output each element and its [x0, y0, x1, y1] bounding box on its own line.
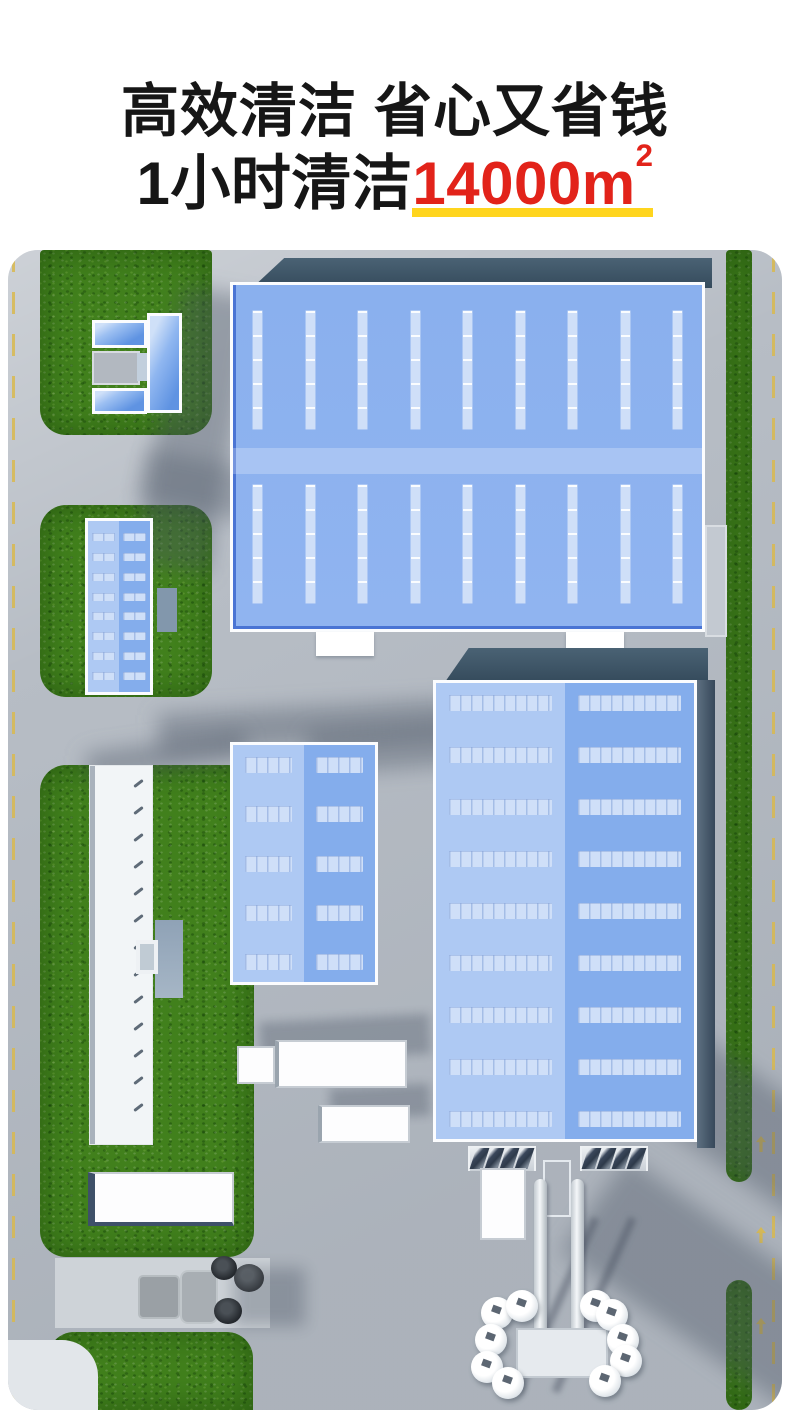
headline-superscript: 2	[636, 138, 654, 173]
header: 高效清洁 省心又省钱 1小时清洁14000m2	[0, 0, 790, 250]
brush-icon	[492, 1367, 524, 1399]
headline-line2: 1小时清洁14000m2	[0, 151, 790, 217]
machine-frame	[543, 1160, 571, 1217]
brush-icon	[506, 1290, 538, 1322]
aerial-industrial-park-illustration	[8, 250, 782, 1410]
brush-icon	[589, 1365, 621, 1397]
headline-line1: 高效清洁 省心又省钱	[0, 0, 790, 143]
gantry-cleaning-machine	[8, 250, 782, 1410]
headline-area-value: 14000m2	[412, 151, 653, 217]
headline-line2-prefix: 1小时清洁	[137, 150, 413, 217]
promo-page: 高效清洁 省心又省钱 1小时清洁14000m2	[0, 0, 790, 1410]
headline-area-number: 14000m	[412, 150, 635, 217]
machine-trailer	[480, 1168, 526, 1240]
